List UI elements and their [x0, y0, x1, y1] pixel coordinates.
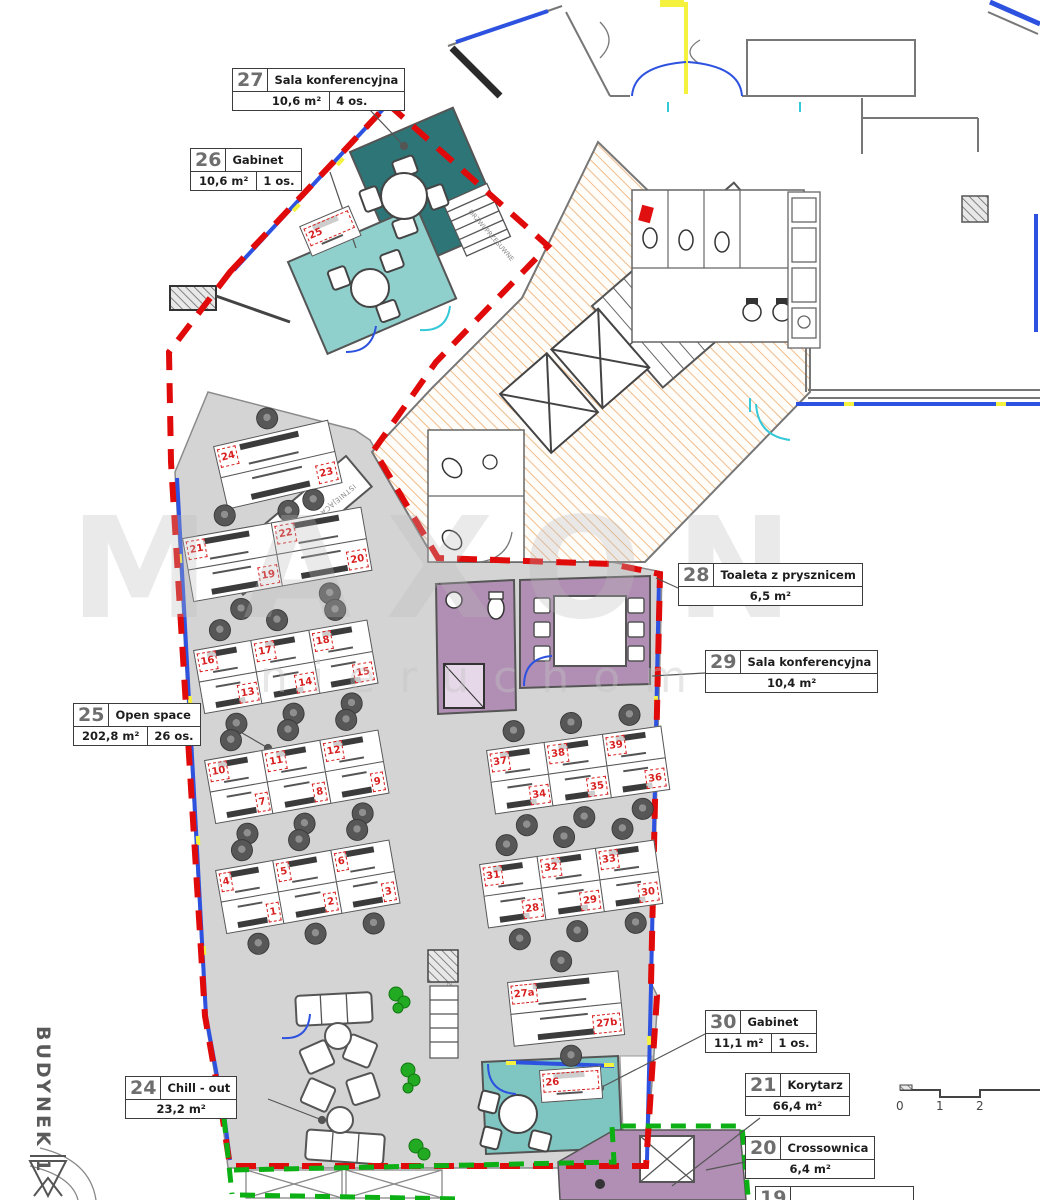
pillar [962, 196, 988, 222]
room-area: 66,4 m² [765, 1097, 830, 1115]
room-number: 27 [233, 69, 268, 91]
room-label-30: 30Gabinet 11,1 m²1 os. [705, 1010, 817, 1053]
room-name: Sala konferencyjna [741, 651, 877, 673]
scale-tick: 1 [936, 1099, 944, 1113]
room-number: 24 [126, 1077, 161, 1099]
room-capacity: 1 os. [771, 1034, 815, 1052]
room-capacity: 1 os. [256, 172, 300, 190]
room-label-24: 24Chill - out 23,2 m² [125, 1076, 237, 1119]
pillar [428, 950, 458, 982]
room-28-toaleta [436, 580, 516, 714]
floor-plan: ISTNIEJĄCA ZABUDOWA MEBLOWA DRZWI PRZESU… [0, 0, 1040, 1200]
room-number: 21 [746, 1074, 781, 1096]
room-number: 28 [679, 564, 714, 586]
room-area: 10,6 m² [191, 172, 256, 190]
room-name: Crossownica [781, 1137, 874, 1159]
room-name: Gabinet [741, 1011, 804, 1033]
room-29-sala-konferencyjna [520, 576, 650, 688]
room-label-28: 28Toaleta z prysznicem 6,5 m² [678, 563, 863, 606]
room-name: Open space [109, 704, 196, 726]
room-area: 202,8 m² [74, 727, 147, 745]
room-capacity: 4 os. [329, 92, 373, 110]
room-area: 6,5 m² [742, 587, 799, 605]
room-area: 23,2 m² [148, 1100, 213, 1118]
room-label-27: 27Sala konferencyjna 10,6 m²4 os. [232, 68, 405, 111]
wc-rooms [428, 430, 524, 562]
scale-tick: 0 [896, 1099, 904, 1113]
shelf [430, 986, 458, 1058]
kitchenette [788, 192, 820, 348]
room-capacity: 26 os. [147, 727, 199, 745]
room-name: Sala konferencyjna [268, 69, 404, 91]
room-area: 6,4 m² [781, 1160, 838, 1178]
scale-tick: 2 [976, 1099, 984, 1113]
room-number: 20 [746, 1137, 781, 1159]
room-label-29: 29Sala konferencyjna 10,4 m² [705, 650, 878, 693]
room-label-19-partial: 19 [755, 1186, 914, 1200]
room-area: 10,4 m² [759, 674, 824, 692]
room-area: 11,1 m² [706, 1034, 771, 1052]
room-name: Toaleta z prysznicem [714, 564, 861, 586]
room-area: 10,6 m² [264, 92, 329, 110]
room-number: 19 [756, 1187, 791, 1200]
room-number: 29 [706, 651, 741, 673]
room-name: Korytarz [781, 1074, 848, 1096]
room-name: Chill - out [161, 1077, 236, 1099]
floor-plan-drawing: ISTNIEJĄCA ZABUDOWA MEBLOWA DRZWI PRZESU… [0, 0, 1040, 1200]
scale-bar: 0 1 2 [896, 1085, 1040, 1113]
room-label-25: 25Open space 202,8 m²26 os. [73, 703, 201, 746]
room-number: 30 [706, 1011, 741, 1033]
room-number: 25 [74, 704, 109, 726]
building-label: BUDYNEK 1 [32, 1026, 54, 1175]
room-label-26: 26Gabinet 10,6 m²1 os. [190, 148, 302, 191]
room-number: 26 [191, 149, 226, 171]
room-name [791, 1187, 913, 1200]
toilets [632, 190, 804, 342]
room-name: Gabinet [226, 149, 289, 171]
room-label-21: 21Korytarz 66,4 m² [745, 1073, 850, 1116]
room-label-20: 20Crossownica 6,4 m² [745, 1136, 875, 1179]
